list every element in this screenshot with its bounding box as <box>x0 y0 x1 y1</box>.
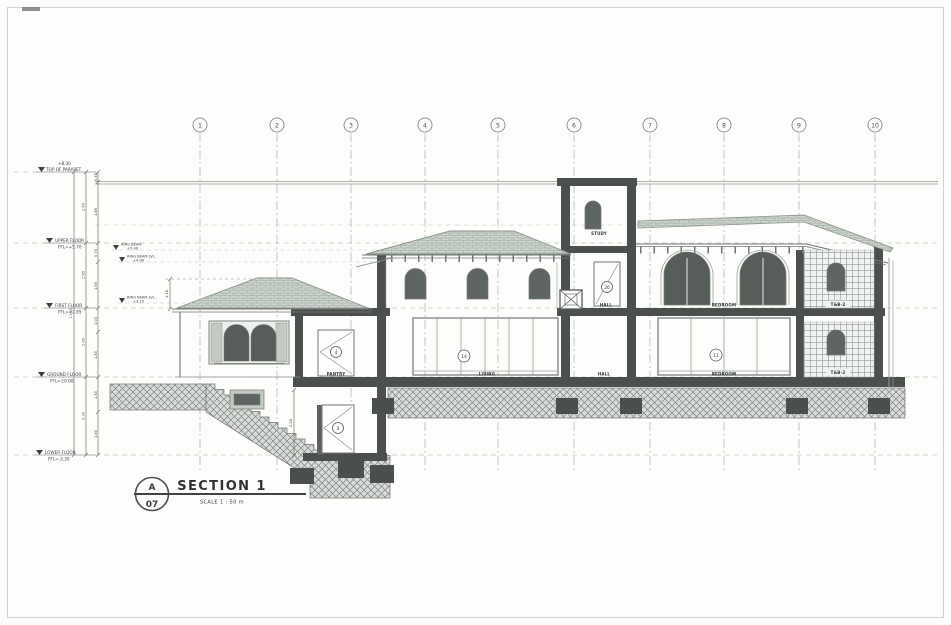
grid-bubble-label: 9 <box>797 123 801 130</box>
terrace-ground <box>110 384 206 410</box>
room-label-tnb-ground: T&B-2 <box>831 370 846 375</box>
ground-band <box>388 388 905 418</box>
drawing-scale: SCALE 1 : 50 m <box>200 500 244 506</box>
level-elevation: FFL=+5.70 <box>58 244 82 249</box>
level-parapet: +8.30 TOP OF PARAPET <box>36 161 96 172</box>
grid-bubble-label: 8 <box>722 123 726 130</box>
sheet-number: 07 <box>146 500 159 510</box>
dim-floor: 3.30 <box>81 411 86 420</box>
level-name: FIRST FLOOR <box>55 303 82 308</box>
dimension-chains: 11.60 2.60 2.85 2.85 3.30 0.45 1.85 0.75… <box>68 170 296 458</box>
level-triangle-icon <box>36 450 43 455</box>
room-label-study: STUDY <box>591 231 607 236</box>
pantry-door: 4 <box>318 330 354 376</box>
grid-bubble-label: 3 <box>349 123 353 130</box>
room-label-tnb-upper: T&B-2 <box>831 302 846 307</box>
lower-floor-door: 3 <box>322 405 354 453</box>
level-upper-floor: UPPER FLOOR FFL=+5.70 <box>44 238 96 250</box>
level-name: GROUND FLOOR <box>47 372 81 377</box>
grid-bubble-label: 7 <box>648 123 652 130</box>
level-elevation: +8.30 <box>58 161 71 166</box>
shuttered-window <box>209 321 289 364</box>
dumbwaiter-box <box>560 290 582 309</box>
dim-sub: 1.80 <box>94 350 98 359</box>
dim-sub: 1.80 <box>94 429 98 438</box>
room-label-hall-upper: HALL <box>600 303 613 308</box>
grid-bubble-label: 6 <box>572 123 576 130</box>
grid-bubble-label: 2 <box>275 123 279 130</box>
bedroom-glazing: 11 <box>658 318 790 375</box>
dim-sub: 0.45 <box>94 173 98 181</box>
drawing-sheet: 4 PANTRY 3 <box>0 0 951 625</box>
dim-sub: 1.00 <box>94 316 98 325</box>
detail-letter: A <box>149 483 156 493</box>
middle-building: 14 LIVING <box>356 231 571 377</box>
ring-beam-2: RING BEAM LVL. +4.90 <box>118 255 380 263</box>
grid-bubble-label: 10 <box>871 123 879 130</box>
level-lower-floor: LOWER FLOOR FFL=-3.30 <box>34 450 96 462</box>
bedroom-arched-door <box>737 250 789 305</box>
level-triangle-icon <box>46 303 53 308</box>
ring-beam-elev: +5.40 <box>127 246 139 250</box>
level-triangle-icon <box>119 257 125 262</box>
door-tag: 4 <box>335 350 338 356</box>
glazing-tag: 14 <box>461 354 467 360</box>
tnb-window-ground <box>827 330 845 355</box>
dim-floor: 2.85 <box>81 270 86 279</box>
room-label-living: LIVING <box>479 372 495 377</box>
grid-bubbles: 1 2 3 4 5 6 7 8 9 10 <box>193 118 882 132</box>
dim-floor: 2.85 <box>81 337 86 346</box>
level-name: UPPER FLOOR <box>55 238 84 243</box>
ring-beam-elev: +3.15 <box>133 299 144 303</box>
dim-floor: 2.60 <box>81 202 86 211</box>
grid-bubble-label: 5 <box>496 123 500 130</box>
bedroom-arched-door <box>661 250 713 305</box>
level-elevation: FFL=±0.00 <box>50 378 74 383</box>
dim-sub: 1.85 <box>94 282 98 290</box>
scan-mark <box>22 7 40 11</box>
tnb-window-upper <box>827 263 845 291</box>
lower-floor-slab <box>303 453 387 461</box>
room-label-hall-ground: HALL <box>598 372 611 377</box>
grid-bubble-label: 1 <box>198 123 202 130</box>
level-name: LOWER FLOOR <box>45 450 76 455</box>
section-drawing: 4 PANTRY 3 <box>0 0 951 625</box>
ring-beam-elev: +4.90 <box>133 258 145 262</box>
door-tag: 26 <box>604 285 610 291</box>
level-ground-floor: GROUND FLOOR FFL=±0.00 <box>36 372 96 384</box>
hall-door: 26 <box>594 262 620 306</box>
right-building: BEDROOM T&B-2 T&B-2 11 BEDROOM <box>636 215 893 388</box>
drawing-title: SECTION 1 <box>177 479 267 494</box>
dim-overall: 11.60 <box>68 307 73 318</box>
level-name: TOP OF PARAPET <box>45 167 82 172</box>
dim-roof: 1.18 <box>165 289 169 298</box>
level-triangle-icon <box>38 167 45 172</box>
level-triangle-icon <box>46 238 53 243</box>
room-label-bedroom-upper: BEDROOM <box>712 303 736 308</box>
ring-beam-1: RING BEAM +5.40 <box>112 243 380 251</box>
level-triangle-icon <box>38 372 45 377</box>
left-roof <box>177 278 368 308</box>
room-label-bedroom-ground: BEDROOM <box>712 372 736 377</box>
dim-sub: 0.75 <box>94 249 98 257</box>
dim-sub: 1.85 <box>94 208 98 216</box>
level-labels: +8.30 TOP OF PARAPET UPPER FLOOR FFL=+5.… <box>34 161 96 461</box>
living-glazing: 14 <box>413 318 558 375</box>
basement-window <box>230 390 264 409</box>
level-triangle-icon <box>119 298 125 303</box>
middle-roof <box>366 231 571 254</box>
level-triangle-icon <box>113 245 119 250</box>
study-window <box>585 201 601 229</box>
arched-window <box>405 269 550 300</box>
dim-sub: 1.50 <box>94 390 98 399</box>
level-elevation: FFL=-3.30 <box>48 456 70 461</box>
door-tag: 3 <box>337 426 340 432</box>
grid-bubble-label: 4 <box>423 123 427 130</box>
room-label-pantry: PANTRY <box>327 372 346 377</box>
dim-room: 2.26 <box>289 418 293 427</box>
title-block: A 07 SECTION 1 SCALE 1 : 50 m <box>134 478 306 511</box>
glazing-tag: 11 <box>713 353 719 359</box>
